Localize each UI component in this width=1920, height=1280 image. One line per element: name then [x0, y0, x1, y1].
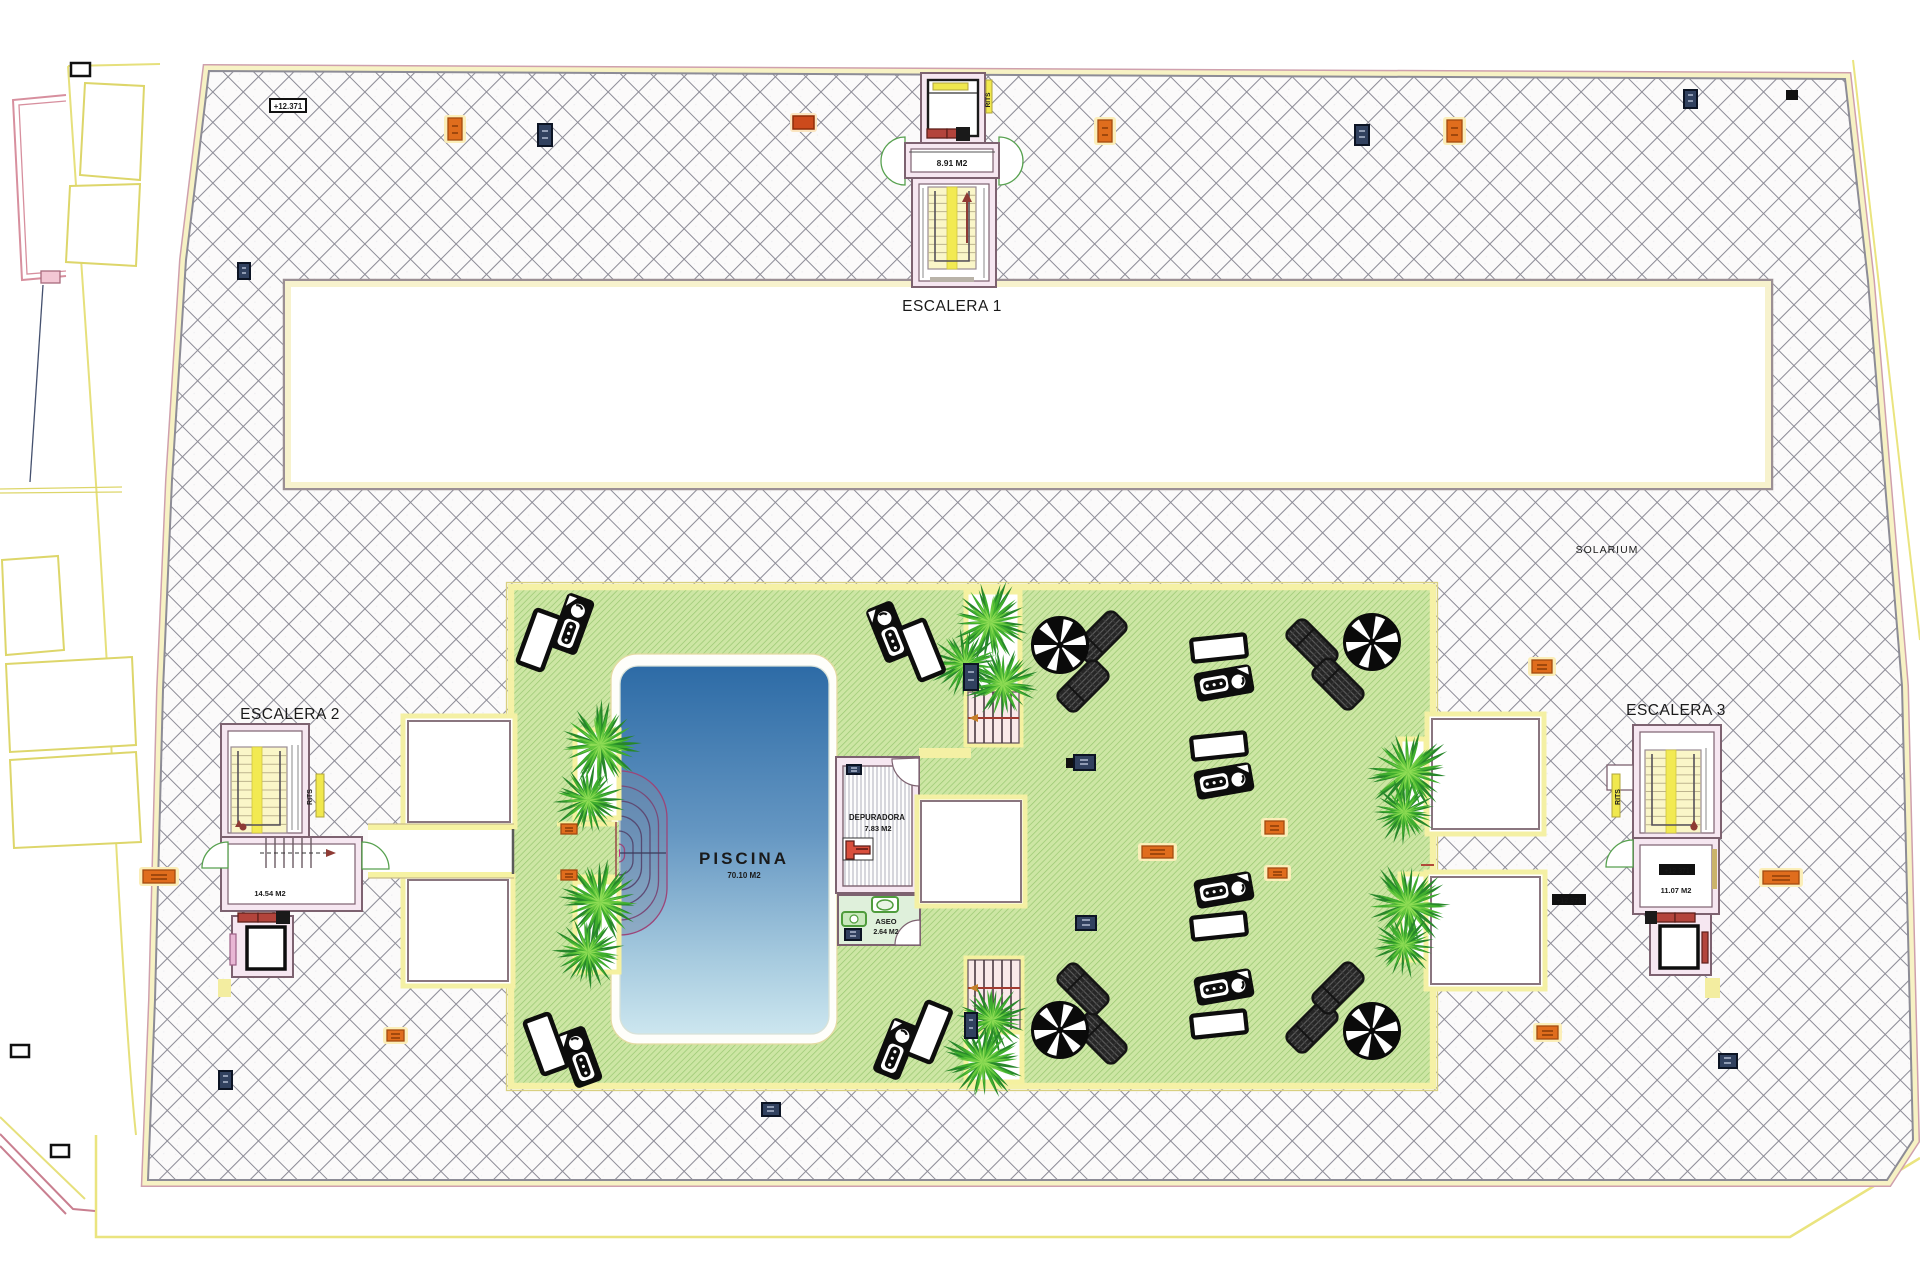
- svg-text:+12.371: +12.371: [1556, 898, 1582, 905]
- svg-text:RITS: RITS: [307, 789, 314, 805]
- svg-text:8.91 M2: 8.91 M2: [937, 158, 968, 168]
- svg-text:SOLARIUM: SOLARIUM: [1576, 544, 1639, 556]
- svg-text:ASEO: ASEO: [875, 917, 896, 926]
- svg-text:70.10 M2: 70.10 M2: [727, 871, 761, 880]
- svg-text:11.07 M2: 11.07 M2: [1661, 886, 1692, 895]
- svg-text:PISCINA: PISCINA: [699, 849, 789, 868]
- svg-text:14.54 M2: 14.54 M2: [254, 889, 285, 898]
- svg-text:ESCALERA 3: ESCALERA 3: [1626, 702, 1726, 719]
- svg-text:ESCALERA 2: ESCALERA 2: [240, 706, 340, 723]
- svg-text:7.83 M2: 7.83 M2: [864, 824, 891, 833]
- svg-text:+12.371: +12.371: [1664, 868, 1690, 875]
- svg-text:2.64 M2: 2.64 M2: [873, 929, 898, 936]
- svg-text:RITS: RITS: [985, 92, 992, 107]
- svg-text:ESCALERA 1: ESCALERA 1: [902, 298, 1002, 315]
- svg-text:+12.371: +12.371: [274, 102, 303, 111]
- svg-text:RITS: RITS: [1615, 789, 1622, 805]
- svg-text:DEPURADORA: DEPURADORA: [849, 813, 905, 822]
